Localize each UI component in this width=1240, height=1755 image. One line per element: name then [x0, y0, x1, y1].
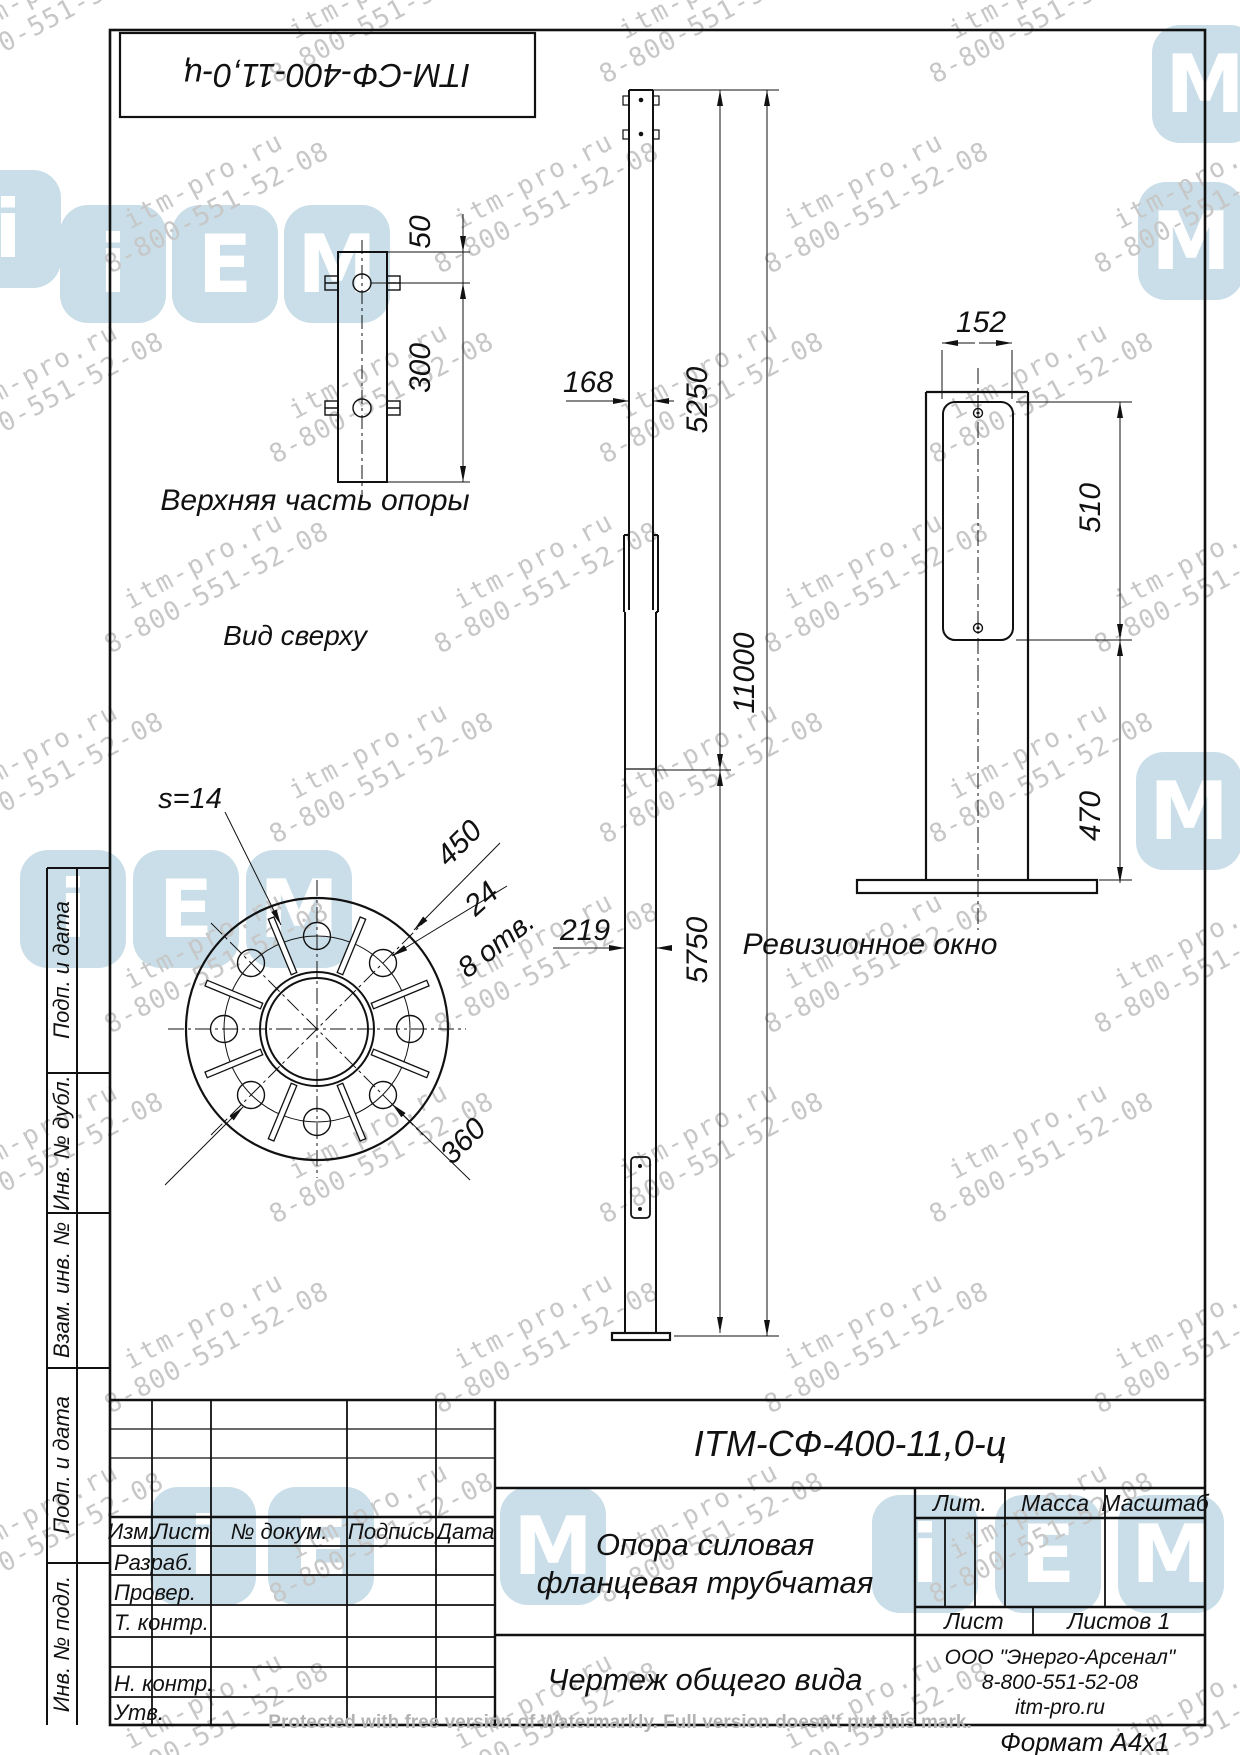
stamp-row-utv: Утв. [114, 1700, 164, 1726]
dim-510: 510 [1074, 483, 1107, 533]
dim-5250: 5250 [681, 366, 714, 433]
dim-11000: 11000 [728, 632, 761, 714]
stamp-row-razrab: Разраб. [114, 1550, 194, 1576]
stamp-header-date: Дата [436, 1517, 495, 1546]
caption-top-view: Вид сверху [210, 620, 380, 652]
dim-s14: s=14 [158, 783, 222, 815]
dim-300: 300 [404, 343, 437, 393]
dim-168: 168 [563, 366, 613, 399]
stamp-doc-type: Чертеж общего вида [495, 1637, 915, 1723]
view-window: 152 510 470 [857, 306, 1132, 930]
side-cell-inv-podl: Инв. № подл. [49, 1576, 75, 1713]
side-cell-vzam-inv: Взам. инв. № [49, 1222, 75, 1358]
stamp-header-list: Лист [152, 1517, 211, 1546]
dim-470: 470 [1074, 791, 1107, 841]
dim-152: 152 [956, 306, 1006, 339]
dim-8otv: 8 отв. [452, 905, 541, 984]
drawing-sheet: iiЕМММiЕММiЕМiЕМitm-pro.ru8-800-551-52-0… [0, 0, 1240, 1755]
stamp-row-prover: Провер. [114, 1580, 196, 1606]
stamp-title: Опора силовая фланцевая трубчатая [495, 1494, 915, 1634]
stamp-sheet-label: Лист [915, 1607, 1033, 1635]
dim-219: 219 [559, 914, 610, 947]
dim-24: 24 [457, 876, 505, 924]
dim-360: 360 [434, 1112, 493, 1171]
view-top-part: 50 300 [325, 214, 470, 494]
stamp-row-nkontr: Н. контр. [114, 1671, 213, 1697]
stamp-sheets-label: Листов 1 [1033, 1607, 1205, 1635]
stamp-row-tkontr: Т. контр. [114, 1610, 209, 1636]
stamp-header-doc: № докум. [211, 1517, 347, 1546]
side-cell-podp-data-1: Подп. и дата [49, 901, 75, 1039]
company-site: itm-pro.ru [1015, 1695, 1105, 1720]
stamp-title-line1: Опора силовая [596, 1526, 814, 1564]
dim-5750: 5750 [681, 916, 714, 983]
stamp-lit-label: Лит. [915, 1488, 1005, 1518]
stamp-header-izm: Изм. [110, 1517, 152, 1546]
company-phone: 8-800-551-52-08 [982, 1670, 1138, 1695]
side-cell-podp-data-2: Подп. и дата [49, 1396, 75, 1534]
stamp-title-line2: фланцевая трубчатая [537, 1564, 874, 1602]
caption-top-part: Верхняя часть опоры [140, 484, 490, 518]
designation-top-box: ITM-СФ-400-11,0-ц [184, 56, 471, 94]
caption-window: Ревизионное окно [720, 928, 1020, 962]
company-name: ООО "Энерго-Арсенал" [945, 1645, 1176, 1670]
stamp-header-sign: Подпись [347, 1517, 436, 1546]
stamp-massa-label: Масса [1005, 1488, 1105, 1518]
dim-50: 50 [404, 215, 437, 249]
view-flange: s=14 450 24 8 отв. 360 [158, 783, 541, 1185]
stamp-designation: ITM-СФ-400-11,0-ц [495, 1402, 1205, 1486]
watermarkly-note: Protected with free version of Watermark… [220, 1712, 1020, 1734]
side-cell-inv-dubl: Инв. № дубл. [49, 1075, 75, 1210]
view-pole: 168 219 5250 5750 11000 [553, 90, 779, 1340]
stamp-scale-label: Масштаб [1105, 1488, 1205, 1518]
